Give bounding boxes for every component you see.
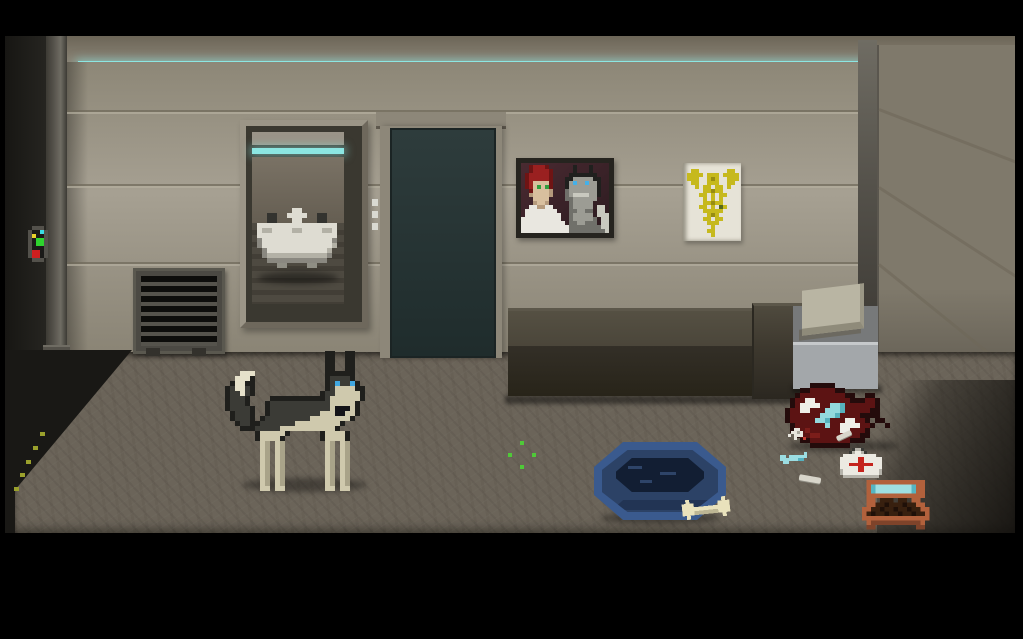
- sink[interactable]: [252, 208, 342, 268]
- pet-feeder[interactable]: [862, 480, 930, 530]
- caduceus-poster[interactable]: [683, 163, 741, 241]
- wall-pillar-left: [46, 36, 67, 356]
- alcove-top-panel: [252, 132, 344, 145]
- bench[interactable]: [508, 308, 790, 349]
- caution-stripe: [20, 473, 25, 477]
- door[interactable]: [380, 126, 502, 358]
- vent-foot: [146, 348, 160, 356]
- door-slab: [390, 128, 496, 358]
- bench-front: [508, 346, 790, 396]
- dog[interactable]: [220, 351, 370, 491]
- caution-stripe: [33, 446, 38, 450]
- caution-stripe: [40, 432, 45, 436]
- letterbox-left: [0, 0, 5, 639]
- game-viewport: [0, 0, 1023, 639]
- hotspot-sparkle[interactable]: [508, 441, 536, 469]
- door-indicator-dot: [372, 199, 378, 206]
- sink-shadow: [258, 272, 338, 284]
- alcove-light-bar: [252, 148, 344, 154]
- door-indicator-dot: [372, 211, 378, 218]
- door-indicator-dot: [372, 223, 378, 230]
- portrait-art: [521, 165, 609, 233]
- vent-foot: [192, 348, 206, 356]
- first-aid-kit[interactable]: [840, 448, 882, 478]
- folded-towels[interactable]: [802, 283, 864, 336]
- wall-portrait[interactable]: [516, 158, 614, 238]
- air-vent[interactable]: [133, 268, 225, 354]
- caution-stripe: [26, 460, 31, 464]
- caduceus-icon: [687, 169, 739, 237]
- side-table-front: [793, 342, 878, 389]
- caution-stripe: [14, 487, 19, 491]
- dog-bed-cushion: [616, 458, 704, 492]
- control-panel[interactable]: [24, 226, 48, 262]
- letterbox-bottom: [0, 533, 1023, 639]
- letterbox-top: [0, 0, 1023, 36]
- pills[interactable]: [788, 428, 806, 440]
- syringe[interactable]: [780, 452, 810, 464]
- letterbox-right: [1015, 0, 1023, 639]
